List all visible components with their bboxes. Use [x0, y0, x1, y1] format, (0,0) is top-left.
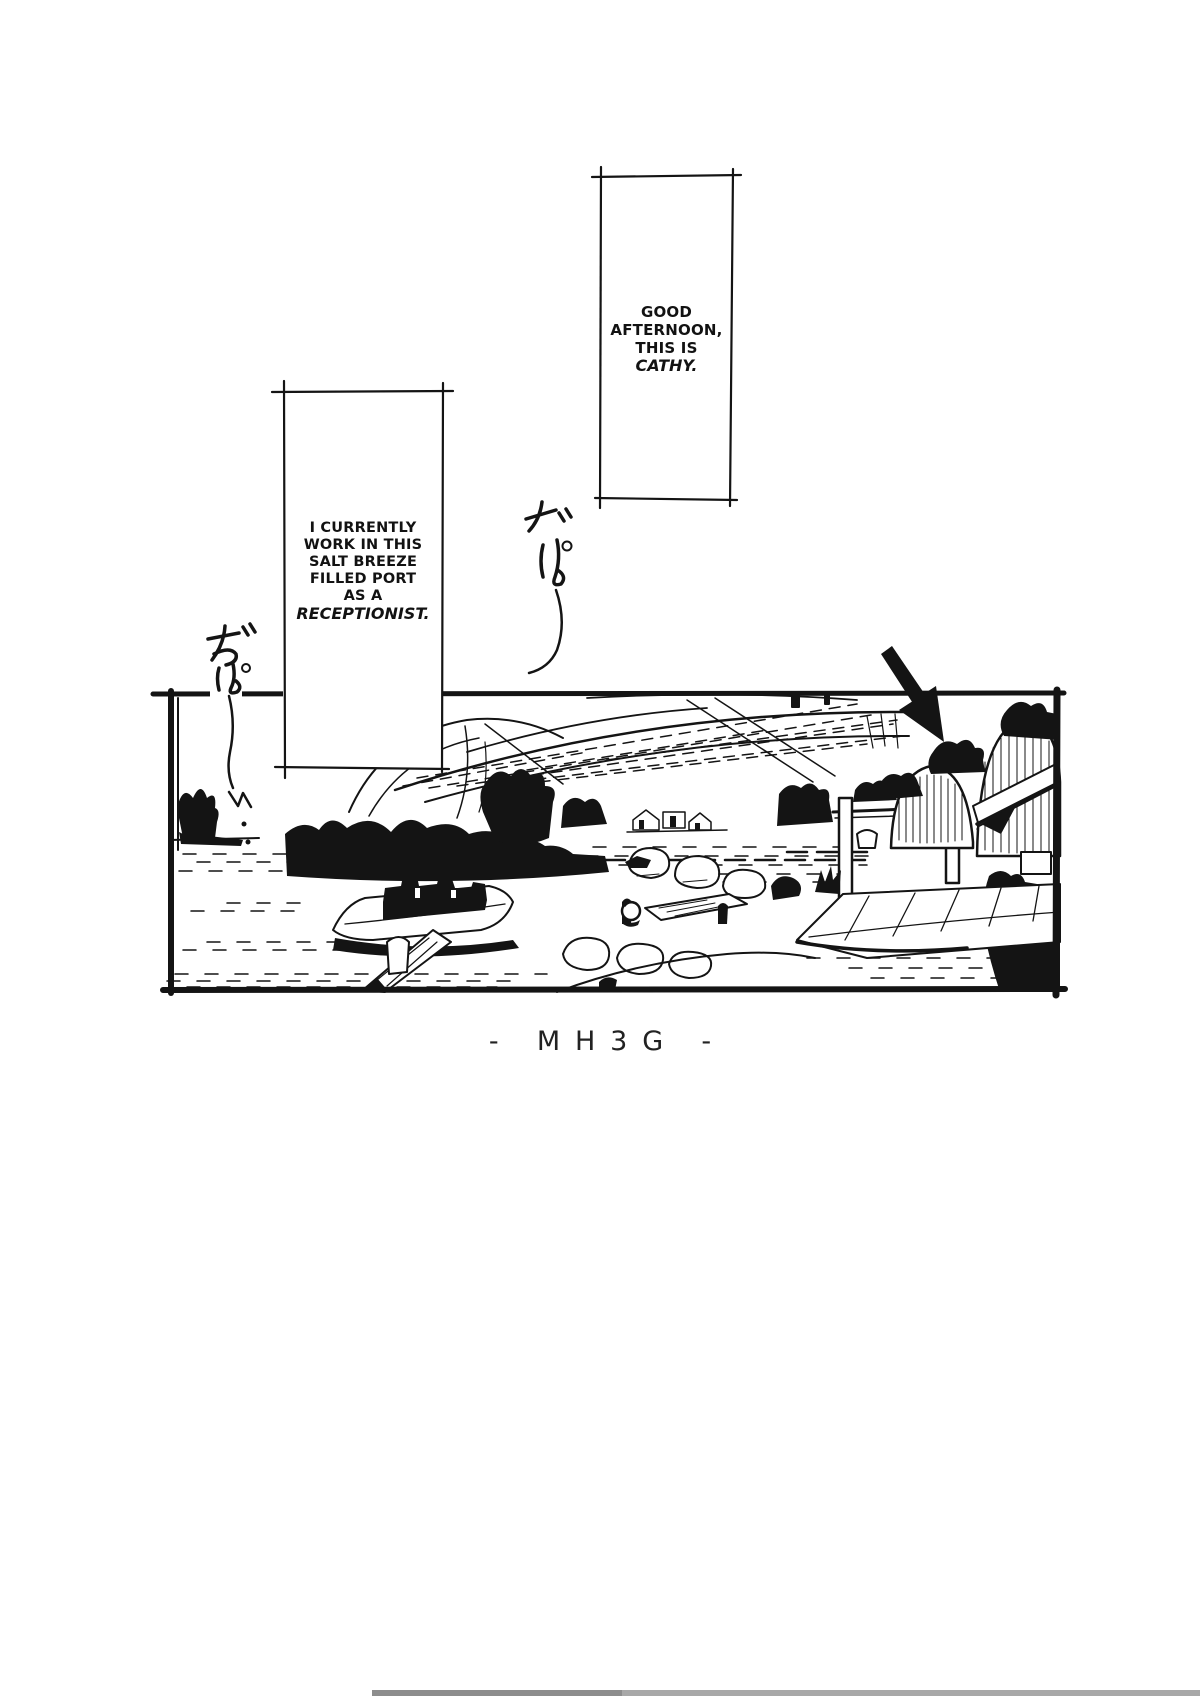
sfx-zapa-right [526, 502, 572, 673]
bubble-line: I CURRENTLY [283, 520, 443, 537]
distant-houses [627, 810, 727, 832]
bubble-line: AFTERNOON, [600, 321, 733, 339]
bubble-line: WORK IN THIS [283, 537, 443, 554]
bubble-narration-text: I CURRENTLY WORK IN THIS SALT BREEZE FIL… [283, 520, 443, 622]
bubble-line: FILLED PORT [283, 571, 443, 588]
bubble-line: AS A [283, 588, 443, 605]
scan-artifact-strip [372, 1690, 1200, 1696]
speech-bubble-greeting: GOOD AFTERNOON, THIS IS CATHY. [600, 175, 733, 500]
terraced-slope [395, 694, 909, 802]
scan-artifact-dark-segment [372, 1690, 622, 1696]
bubble-emphasis: CATHY. [600, 357, 733, 375]
bubble-line: SALT BREEZE [283, 554, 443, 571]
bubble-line: GOOD [600, 303, 733, 321]
shore-stones [557, 938, 815, 992]
series-caption: - MH3G - [0, 1026, 1200, 1057]
manga-page: GOOD AFTERNOON, THIS IS CATHY. I CURRENT… [0, 0, 1200, 1696]
bubble-greeting-text: GOOD AFTERNOON, THIS IS CATHY. [600, 303, 733, 375]
building-sign [1021, 852, 1051, 874]
left-bank-tree [169, 789, 259, 846]
bubble-emphasis: RECEPTIONIST. [283, 605, 443, 622]
speech-bubble-narration: I CURRENTLY WORK IN THIS SALT BREEZE FIL… [283, 391, 443, 768]
bubble-line: THIS IS [600, 339, 733, 357]
buoy [622, 902, 640, 927]
